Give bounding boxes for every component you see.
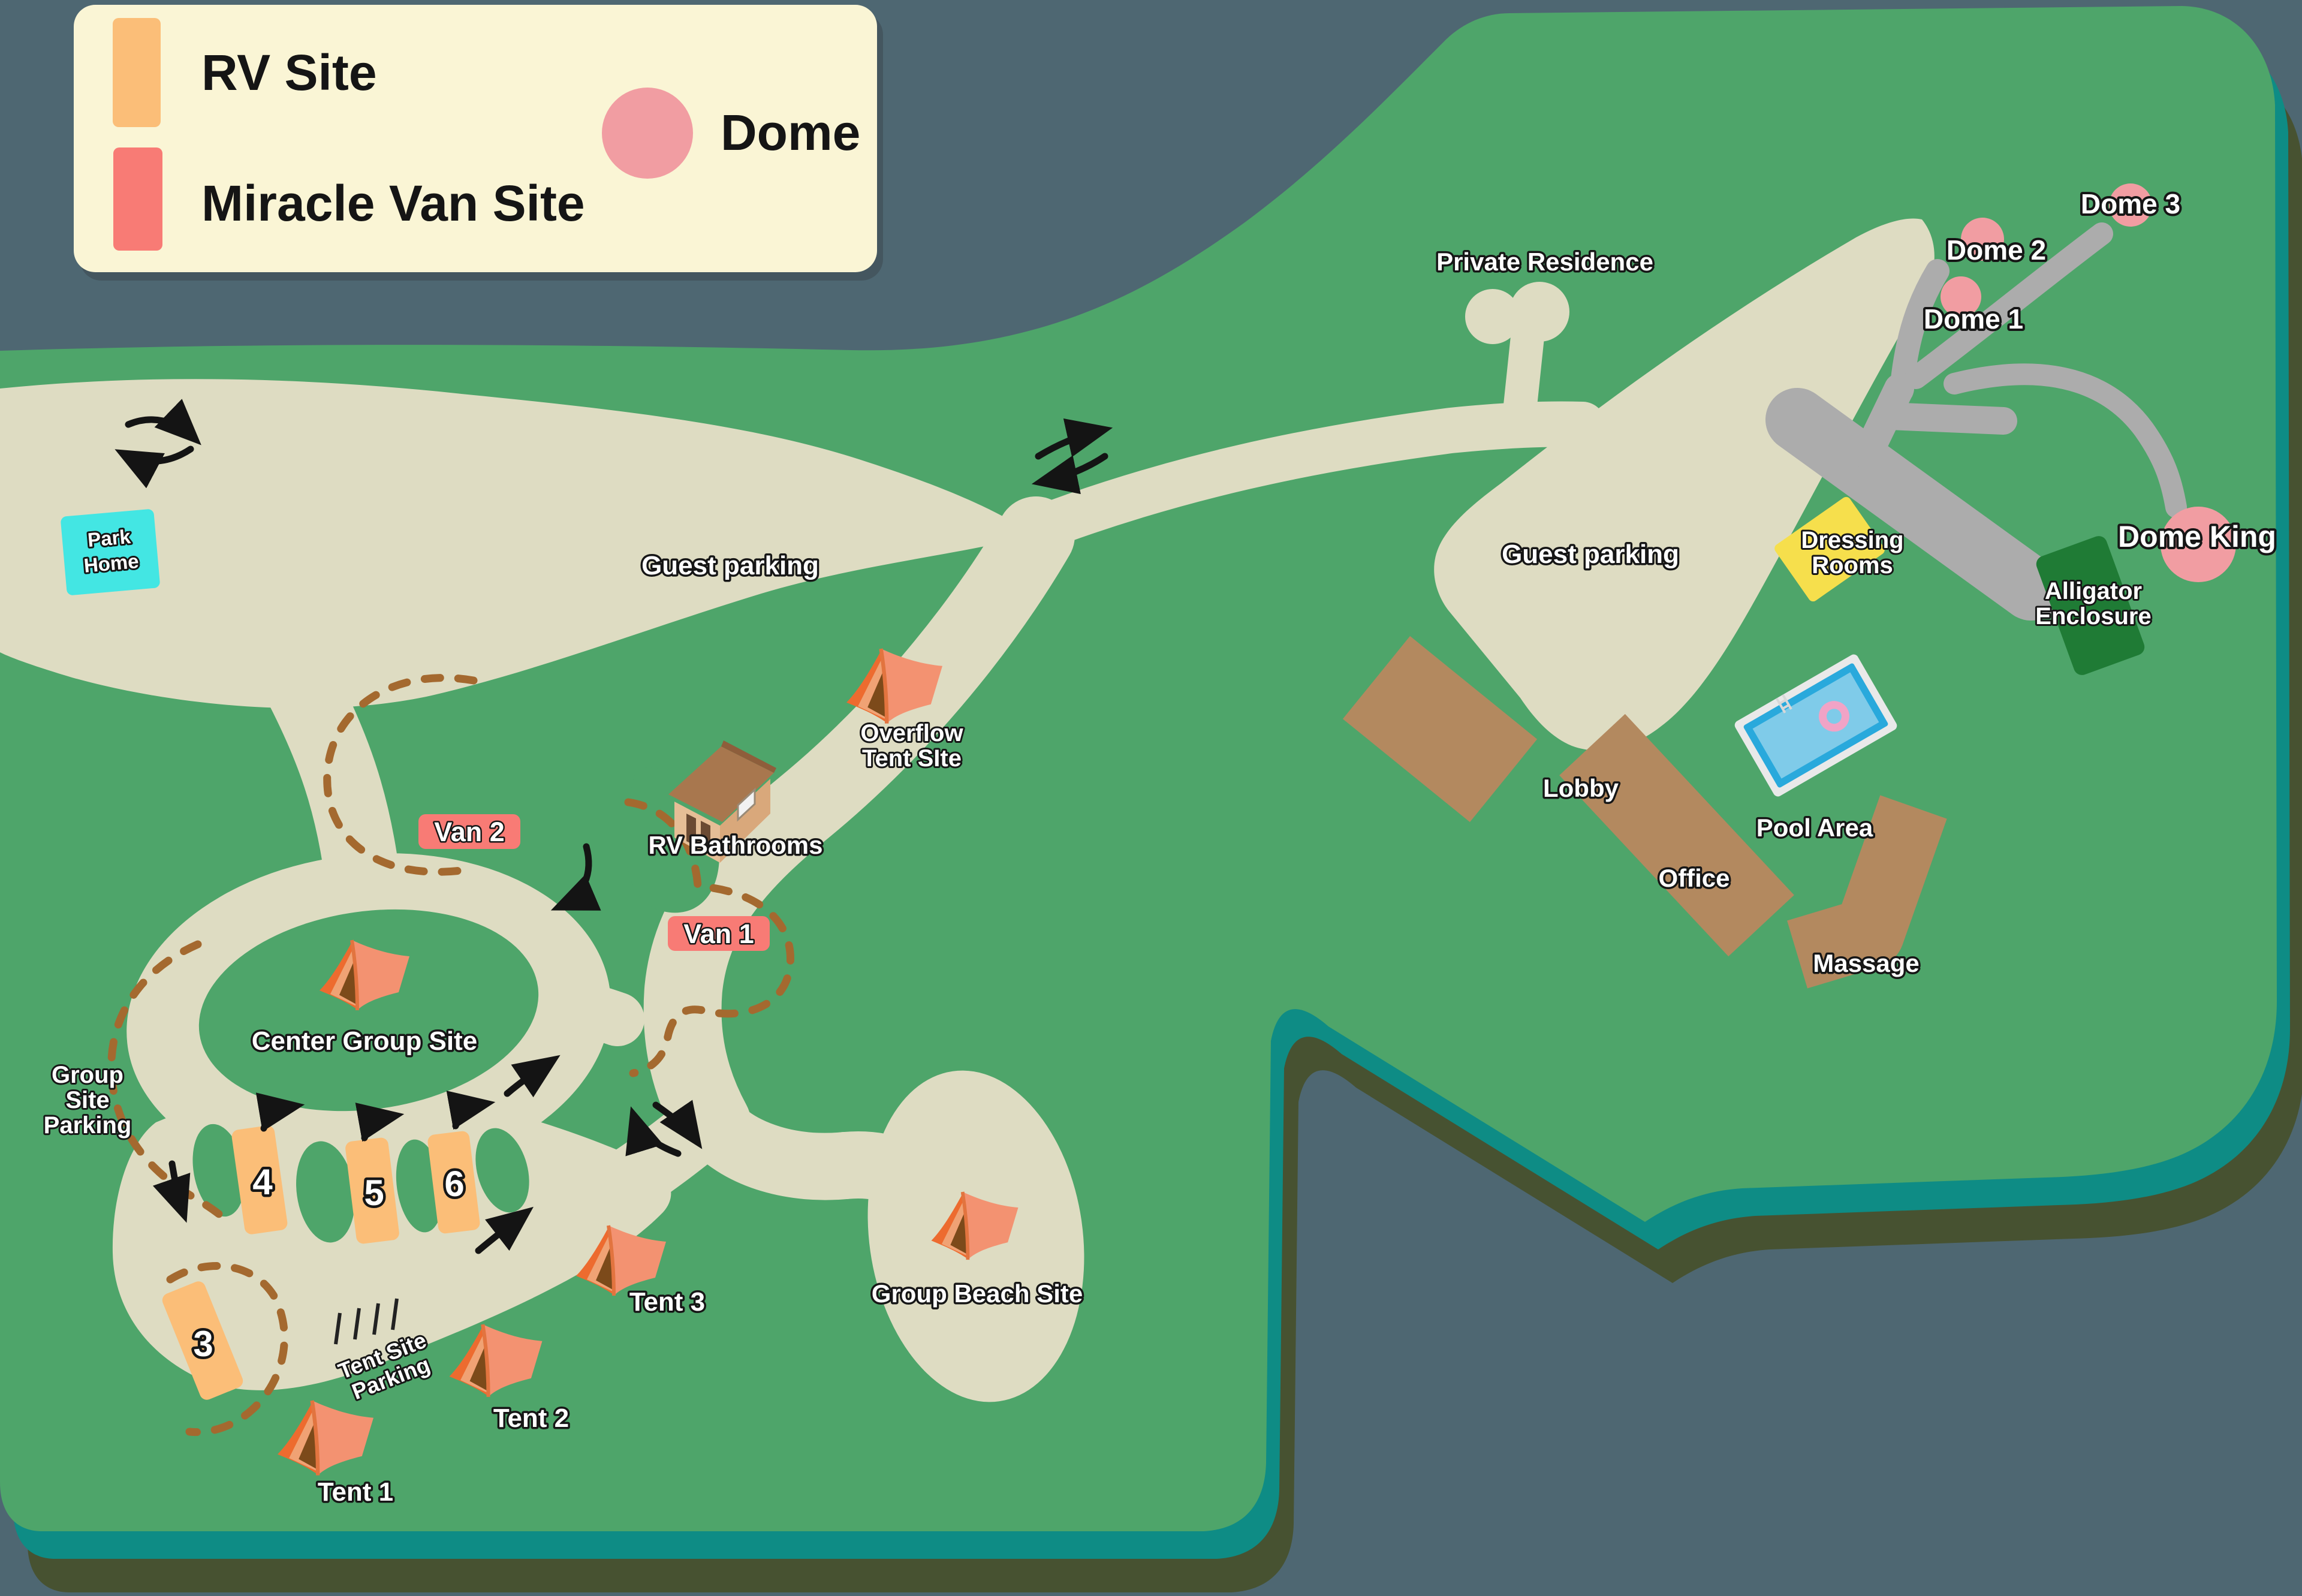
site6-number: 6 xyxy=(444,1164,464,1204)
legend-dome-label: Dome xyxy=(721,104,860,161)
overflow-line1: Overflow xyxy=(860,720,963,746)
dome3-label: Dome 3 xyxy=(2081,188,2180,219)
legend: RV Site Miracle Van Site Dome xyxy=(74,5,883,281)
group-site-parking-line1: Group xyxy=(52,1062,123,1088)
legend-van-label: Miracle Van Site xyxy=(201,175,585,231)
van1-badge: Van 1 xyxy=(668,916,770,951)
dome2-label: Dome 2 xyxy=(1947,234,2046,266)
tent3-label: Tent 3 xyxy=(629,1287,705,1317)
campground-map: Van 2 Van 1 Park Home Guest parking Priv… xyxy=(0,0,2302,1596)
overflow-line2: Tent SIte xyxy=(862,745,962,772)
tent2-label: Tent 2 xyxy=(493,1404,569,1433)
park-home-line1: Park xyxy=(87,525,132,551)
group-site-parking-line3: Parking xyxy=(44,1112,132,1139)
massage-label: Massage xyxy=(1813,949,1919,977)
office-label: Office xyxy=(1658,864,1729,892)
dressing-rooms-line1: Dressing xyxy=(1801,527,1903,553)
private-residence-label: Private Residence xyxy=(1436,248,1653,276)
alligator-line1: Alligator xyxy=(2045,578,2142,604)
rv-bathrooms-label: RV Bathrooms xyxy=(649,831,823,859)
legend-dome-swatch xyxy=(602,88,693,179)
lobby-label: Lobby xyxy=(1543,774,1619,802)
van2-badge: Van 2 xyxy=(418,814,520,849)
dressing-rooms-line2: Rooms xyxy=(1812,552,1893,579)
tent1-label: Tent 1 xyxy=(318,1477,393,1507)
guest-parking-east-label: Guest parking xyxy=(1502,540,1679,569)
legend-van-swatch xyxy=(113,147,162,251)
legend-rv-swatch xyxy=(113,18,161,127)
private-residence-court-b xyxy=(1509,282,1569,342)
dome-king-label: Dome King xyxy=(2118,520,2276,553)
group-site-parking-line2: Site xyxy=(65,1087,109,1113)
driveway-stub xyxy=(1890,416,2003,421)
site5-number: 5 xyxy=(364,1173,384,1213)
alligator-line2: Enclosure xyxy=(2035,603,2151,630)
site4-number: 4 xyxy=(252,1162,273,1202)
center-group-site-label: Center Group Site xyxy=(252,1026,478,1056)
van1-label: Van 1 xyxy=(683,919,754,949)
group-beach-site-label: Group Beach Site xyxy=(872,1279,1083,1308)
guest-parking-west-label: Guest parking xyxy=(641,551,819,580)
site3-number: 3 xyxy=(193,1324,213,1364)
van2-label: Van 2 xyxy=(434,817,505,847)
dome1-label: Dome 1 xyxy=(1924,303,2023,335)
pool-area-label: Pool Area xyxy=(1756,814,1873,842)
private-residence-driveway xyxy=(1519,337,1527,417)
legend-rv-label: RV Site xyxy=(201,44,377,101)
